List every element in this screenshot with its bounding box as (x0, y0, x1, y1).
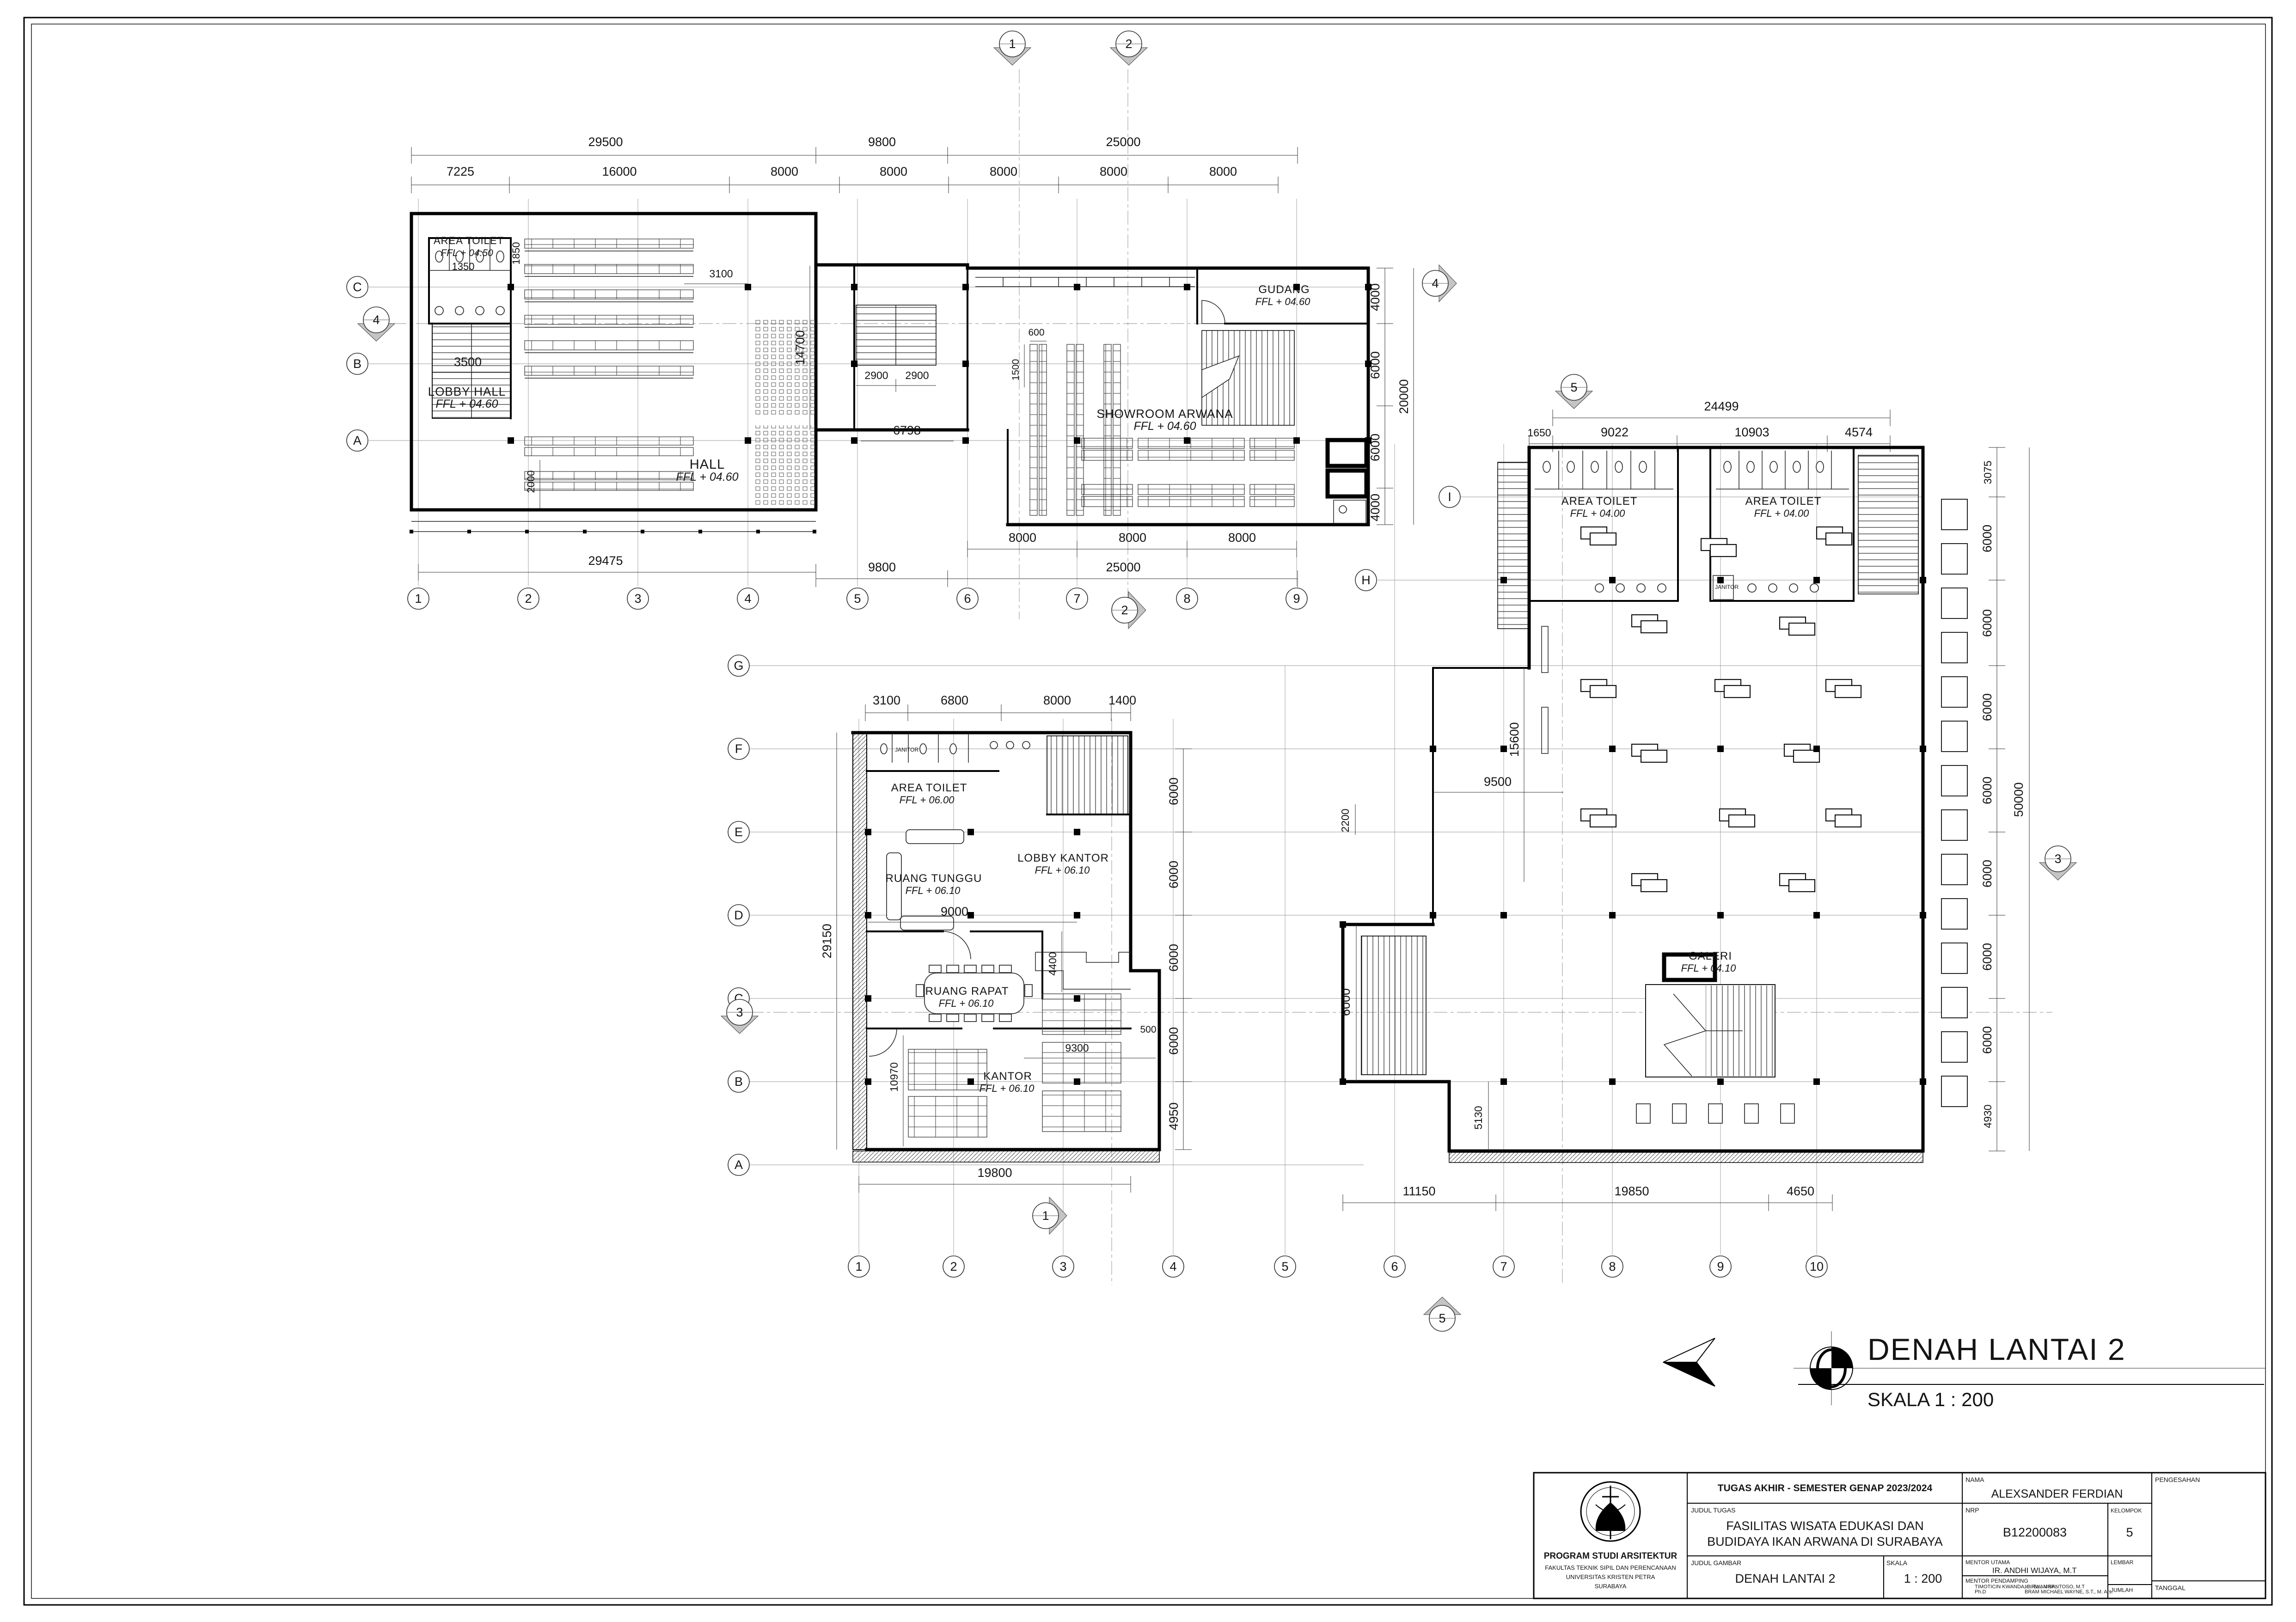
dim-6000-o4: 6000 (1167, 1027, 1181, 1055)
section-marker-label: 1 (1009, 37, 1016, 51)
gallery-stair-wing (1361, 936, 1426, 1075)
dim-29500: 29500 (588, 135, 623, 149)
dim-3500: 3500 (454, 355, 482, 369)
section-marker-label: 3 (736, 1005, 743, 1019)
dim-4950: 4950 (1167, 1102, 1181, 1130)
dim-4000-b: 4000 (1368, 494, 1382, 521)
dim-14700: 14700 (793, 330, 807, 365)
dim-1500: 1500 (1010, 359, 1021, 381)
pengesahan-label: PENGESAHAN (2155, 1476, 2200, 1483)
gallery-toilet1-label: AREA TOILET (1561, 495, 1638, 508)
display-cases (1941, 499, 1967, 1107)
section-marker-2-top: 2 (1110, 31, 1147, 65)
dim-9800: 9800 (868, 135, 896, 149)
bubble-bot-8: 8 (1609, 1260, 1616, 1273)
section-marker-4-left: 4 (358, 307, 395, 341)
section-marker-1-bottom: 1 (1033, 1197, 1067, 1234)
section-marker-label: 4 (1432, 276, 1439, 290)
dim-6000-o3: 6000 (1167, 944, 1181, 972)
dim-9000: 9000 (941, 905, 968, 918)
hall-toilet-label: AREA TOILET (434, 235, 504, 246)
mentor-pendamping-2: Ph.D (1975, 1589, 1986, 1595)
dim-2900-b: 2900 (905, 369, 929, 381)
bubble-top-7: 7 (1073, 592, 1080, 606)
bubble-bot-5: 5 (1281, 1260, 1288, 1273)
galeri-ffl: FFL + 04.10 (1681, 962, 1737, 974)
nrp-value: B12200083 (2003, 1525, 2067, 1539)
lobby-kantor-ffl: FFL + 06.10 (1035, 864, 1090, 876)
nrp-label: NRP (1965, 1506, 1979, 1514)
kantor-label: KANTOR (983, 1070, 1032, 1083)
skala-label: SKALA (1886, 1559, 1908, 1567)
lobby-kantor-label: LOBBY KANTOR (1017, 852, 1109, 864)
plan-gallery: 24499 1650 9022 10903 4574 AREA TOILET F… (1339, 399, 2029, 1211)
nama-value: ALEXSANDER FERDIAN (1991, 1487, 2123, 1500)
dim-8000-b: 8000 (880, 165, 907, 178)
bubble-bot-6: 6 (1391, 1260, 1398, 1273)
drawing-sheet: 29500 9800 25000 7225 16000 8000 8000 80… (0, 0, 2296, 1622)
dim-500: 500 (1140, 1024, 1156, 1035)
section-marker-3-right: 3 (2039, 846, 2076, 880)
section-marker-label: 4 (373, 313, 380, 327)
dim-9800-b: 9800 (868, 560, 896, 574)
bubble-row-f: F (735, 742, 743, 756)
showroom-shaft (1328, 440, 1366, 523)
judul-tugas-line2: BUDIDAYA IKAN ARWANA DI SURABAYA (1707, 1535, 1943, 1549)
bubble-bot-10: 10 (1810, 1260, 1824, 1273)
gallery-toilet2-ffl: FFL + 04.00 (1754, 508, 1810, 519)
dim-1350: 1350 (452, 261, 475, 272)
dim-16000: 16000 (602, 165, 637, 178)
dim-29150: 29150 (820, 924, 834, 958)
north-arrow-icon (1663, 1338, 1715, 1386)
dim-8000-c: 8000 (990, 165, 1017, 178)
dim-8000-h: 8000 (1228, 531, 1256, 545)
dim-3075: 3075 (1982, 460, 1994, 484)
lobby-hall-label: LOBBY HALL (428, 385, 506, 398)
dim-25000-b: 25000 (1106, 560, 1140, 574)
judul-gambar-label: JUDUL GAMBAR (1691, 1559, 1741, 1567)
nama-label: NAMA (1965, 1476, 1984, 1483)
bubble-top-4: 4 (744, 592, 751, 606)
bubble-row-e: E (735, 825, 743, 839)
dim-19800: 19800 (977, 1166, 1012, 1180)
bubble-row-a: A (353, 434, 361, 447)
dim-3100-o: 3100 (873, 693, 900, 707)
office-janitor-label: JANITOR (895, 747, 918, 753)
section-marker-label: 2 (1125, 37, 1132, 51)
gallery-toilet1-ffl: FFL + 04.00 (1570, 508, 1626, 519)
bubble-top-5: 5 (854, 592, 861, 606)
showroom-ffl: FFL + 04.60 (1133, 420, 1196, 433)
hall-tables (525, 239, 693, 490)
link-corridor: 2900 2900 6798 14700 (793, 265, 967, 441)
dim-11150: 11150 (1402, 1184, 1435, 1198)
ruang-tunggu-ffl: FFL + 06.10 (906, 885, 961, 896)
dim-6000-g1: 6000 (1980, 525, 1994, 552)
gallery-toilets (1529, 447, 1854, 601)
bubble-top-1: 1 (415, 592, 422, 606)
dim-2900-a: 2900 (864, 369, 888, 381)
mentor-utama-value: IR. ANDHI WIJAYA, M.T (1992, 1566, 2077, 1575)
hall-toilet-ffl: FFL + 04.50 (441, 248, 493, 258)
bubble-top-3: 3 (634, 592, 641, 606)
section-marker-1-top: 1 (994, 31, 1031, 65)
bubble-row-i: I (1448, 490, 1451, 504)
section-marker-5-bottom: 5 (1424, 1297, 1461, 1331)
kota-label: SURABAYA (1595, 1583, 1627, 1590)
section-marker-label: 5 (1439, 1311, 1445, 1325)
bubble-row-c: C (353, 280, 362, 294)
dim-1650: 1650 (1527, 427, 1551, 439)
dim-6000-o1: 6000 (1167, 777, 1181, 805)
dim-6000-o2: 6000 (1167, 861, 1181, 888)
dim-6000-g2: 6000 (1980, 609, 1994, 637)
bubble-row-b2: B (735, 1075, 743, 1089)
bubble-top-6: 6 (964, 592, 971, 606)
bubble-top-8: 8 (1183, 592, 1190, 606)
dim-4650: 4650 (1787, 1184, 1814, 1198)
hall-label: HALL (690, 457, 725, 472)
bubble-row-h: H (1361, 573, 1371, 587)
dim-25000: 25000 (1106, 135, 1140, 149)
dim-4400: 4400 (1047, 952, 1059, 975)
section-marker-4-right: 4 (1422, 265, 1457, 302)
bubble-bot-9: 9 (1717, 1260, 1724, 1273)
gudang-label: GUDANG (1258, 283, 1310, 296)
bubble-bot-1: 1 (855, 1260, 862, 1273)
tanggal-label: TANGGAL (2155, 1584, 2186, 1591)
section-marker-label: 2 (1121, 603, 1128, 617)
dim-3100: 3100 (709, 268, 733, 280)
judul-tugas-label: JUDUL TUGAS (1691, 1506, 1735, 1514)
gallery-janitor-label: JANITOR (1715, 584, 1739, 590)
tb-header: TUGAS AKHIR - SEMESTER GENAP 2023/2024 (1718, 1483, 1933, 1493)
section-marker-label: 3 (2054, 852, 2061, 866)
ruang-tunggu-label: RUANG TUNGGU (886, 872, 982, 885)
dim-9500: 9500 (1484, 775, 1512, 789)
gallery-stair-ne (1858, 455, 1918, 594)
dim-8000-f: 8000 (1009, 531, 1036, 545)
dim-6000-g6: 6000 (1980, 943, 1994, 971)
bubble-top-2: 2 (525, 592, 532, 606)
dim-8000-o: 8000 (1043, 693, 1071, 707)
dim-6000-g7: 6000 (1980, 1026, 1994, 1054)
section-marker-5-top: 5 (1555, 374, 1592, 409)
dim-5130: 5130 (1472, 1106, 1484, 1129)
drawing-title: DENAH LANTAI 2 SKALA 1 : 200 (1663, 1331, 2265, 1410)
floor-plan-canvas: 29500 9800 25000 7225 16000 8000 8000 80… (0, 0, 2296, 1622)
ruang-rapat-label: RUANG RAPAT (925, 985, 1009, 998)
galeri-label: GALERI (1689, 950, 1732, 962)
office-stair (1047, 736, 1131, 814)
gallery-stair-west (1498, 462, 1528, 629)
lobby-hall-ffl: FFL + 04.60 (435, 398, 498, 410)
judul-gambar-value: DENAH LANTAI 2 (1735, 1572, 1835, 1585)
jumlah-label: JUMLAH (2111, 1587, 2133, 1593)
dim-6000-gl: 6000 (1339, 988, 1353, 1016)
link-stair (856, 305, 936, 365)
page-scale: SKALA 1 : 200 (1867, 1389, 1994, 1410)
univ-label: UNIVERSITAS KRISTEN PETRA (1566, 1573, 1655, 1580)
dim-2000: 2000 (525, 471, 537, 493)
dim-10903: 10903 (1734, 425, 1769, 439)
section-markers: 1 2 4 4 5 2 1 5 3 3 (358, 31, 2076, 1331)
dim-29475: 29475 (588, 554, 623, 568)
dim-9022: 9022 (1601, 425, 1629, 439)
dim-6000-g5: 6000 (1980, 860, 1994, 888)
top-dimension-row: 29500 9800 25000 7225 16000 8000 8000 80… (411, 135, 1298, 193)
ruang-rapat-ffl: FFL + 06.10 (939, 998, 994, 1009)
office-toilet (867, 733, 1030, 771)
dim-4574: 4574 (1845, 425, 1873, 439)
bubble-row-b: B (353, 357, 361, 371)
kantor-ffl: FFL + 06.10 (980, 1083, 1035, 1094)
plan-hall: AREA TOILET FFL + 04.50 1350 1850 3500 L… (410, 214, 816, 581)
dim-50000: 50000 (2012, 782, 2026, 817)
bubble-bot-3: 3 (1059, 1260, 1066, 1273)
title-block: PROGRAM STUDI ARSITEKTUR FAKULTAS TEKNIK… (1534, 1473, 2265, 1598)
dim-15600: 15600 (1507, 722, 1521, 757)
dim-9300: 9300 (1065, 1042, 1089, 1054)
judul-tugas-line1: FASILITAS WISATA EDUKASI DAN (1726, 1519, 1924, 1533)
bubble-bot-4: 4 (1169, 1260, 1176, 1273)
sheet-border (24, 18, 2272, 1605)
mentor-utama-label: MENTOR UTAMA (1965, 1559, 2010, 1566)
dim-1400: 1400 (1108, 693, 1136, 707)
gudang-ffl: FFL + 04.60 (1255, 296, 1311, 307)
lembar-label: LEMBAR (2111, 1559, 2134, 1566)
dim-6000-g4: 6000 (1980, 777, 1994, 804)
section-marker-2-bottom: 2 (1112, 592, 1146, 629)
dim-6000-g3: 6000 (1980, 693, 1994, 721)
page-title: DENAH LANTAI 2 (1867, 1332, 2126, 1366)
bubble-top-9: 9 (1293, 592, 1300, 606)
office-toilet-ffl: FFL + 06.00 (900, 794, 955, 806)
prodi-label: PROGRAM STUDI ARSITEKTUR (1544, 1551, 1678, 1561)
dim-8000-e: 8000 (1209, 165, 1237, 178)
dim-2200: 2200 (1339, 808, 1351, 832)
mentor-pendamping-label: MENTOR PENDAMPING (1965, 1578, 2028, 1584)
dim-24499: 24499 (1704, 399, 1739, 413)
dim-8000-a: 8000 (771, 165, 798, 178)
dim-7225: 7225 (447, 165, 474, 178)
bubble-bot-2: 2 (950, 1260, 957, 1273)
dim-1850: 1850 (510, 242, 522, 265)
dim-19850: 19850 (1614, 1184, 1649, 1198)
hall-ffl: FFL + 04.60 (676, 471, 738, 484)
dim-8000-d: 8000 (1100, 165, 1127, 178)
showroom-label: SHOWROOM ARWANA (1096, 407, 1233, 421)
section-marker-label: 5 (1570, 380, 1577, 394)
dim-4930: 4930 (1982, 1104, 1994, 1128)
university-logo (1581, 1482, 1640, 1541)
gallery-toilet2-label: AREA TOILET (1745, 495, 1822, 508)
kelompok-label: KELOMPOK (2111, 1507, 2142, 1514)
bubble-row-d: D (734, 908, 743, 922)
fakultas-label: FAKULTAS TEKNIK SIPIL DAN PERENCANAAN (1545, 1564, 1676, 1571)
bubble-row-g: G (734, 659, 743, 673)
dim-6800: 6800 (941, 693, 968, 707)
plinth-row (1636, 1104, 1794, 1123)
bubble-bot-7: 7 (1500, 1260, 1507, 1273)
kelompok-value: 5 (2126, 1525, 2133, 1539)
skala-value: 1 : 200 (1904, 1572, 1942, 1585)
grid-lines (369, 69, 2052, 1285)
dim-600: 600 (1028, 327, 1044, 338)
section-marker-label: 1 (1042, 1209, 1049, 1223)
dim-20000: 20000 (1397, 379, 1411, 414)
dim-8000-g: 8000 (1119, 531, 1146, 545)
plan-office: 3100 6800 8000 1400 JANITOR AREA TOILET … (820, 693, 1192, 1193)
dim-10970: 10970 (888, 1062, 900, 1092)
office-toilet-label: AREA TOILET (891, 782, 967, 794)
mentor-pendamping-4: BRAM MICHAEL WAYNE, S.T., M. Ars. (2025, 1589, 2113, 1595)
bubble-row-a2: A (735, 1158, 743, 1172)
dim-6798: 6798 (893, 423, 921, 437)
section-marker-3-left: 3 (721, 999, 758, 1034)
